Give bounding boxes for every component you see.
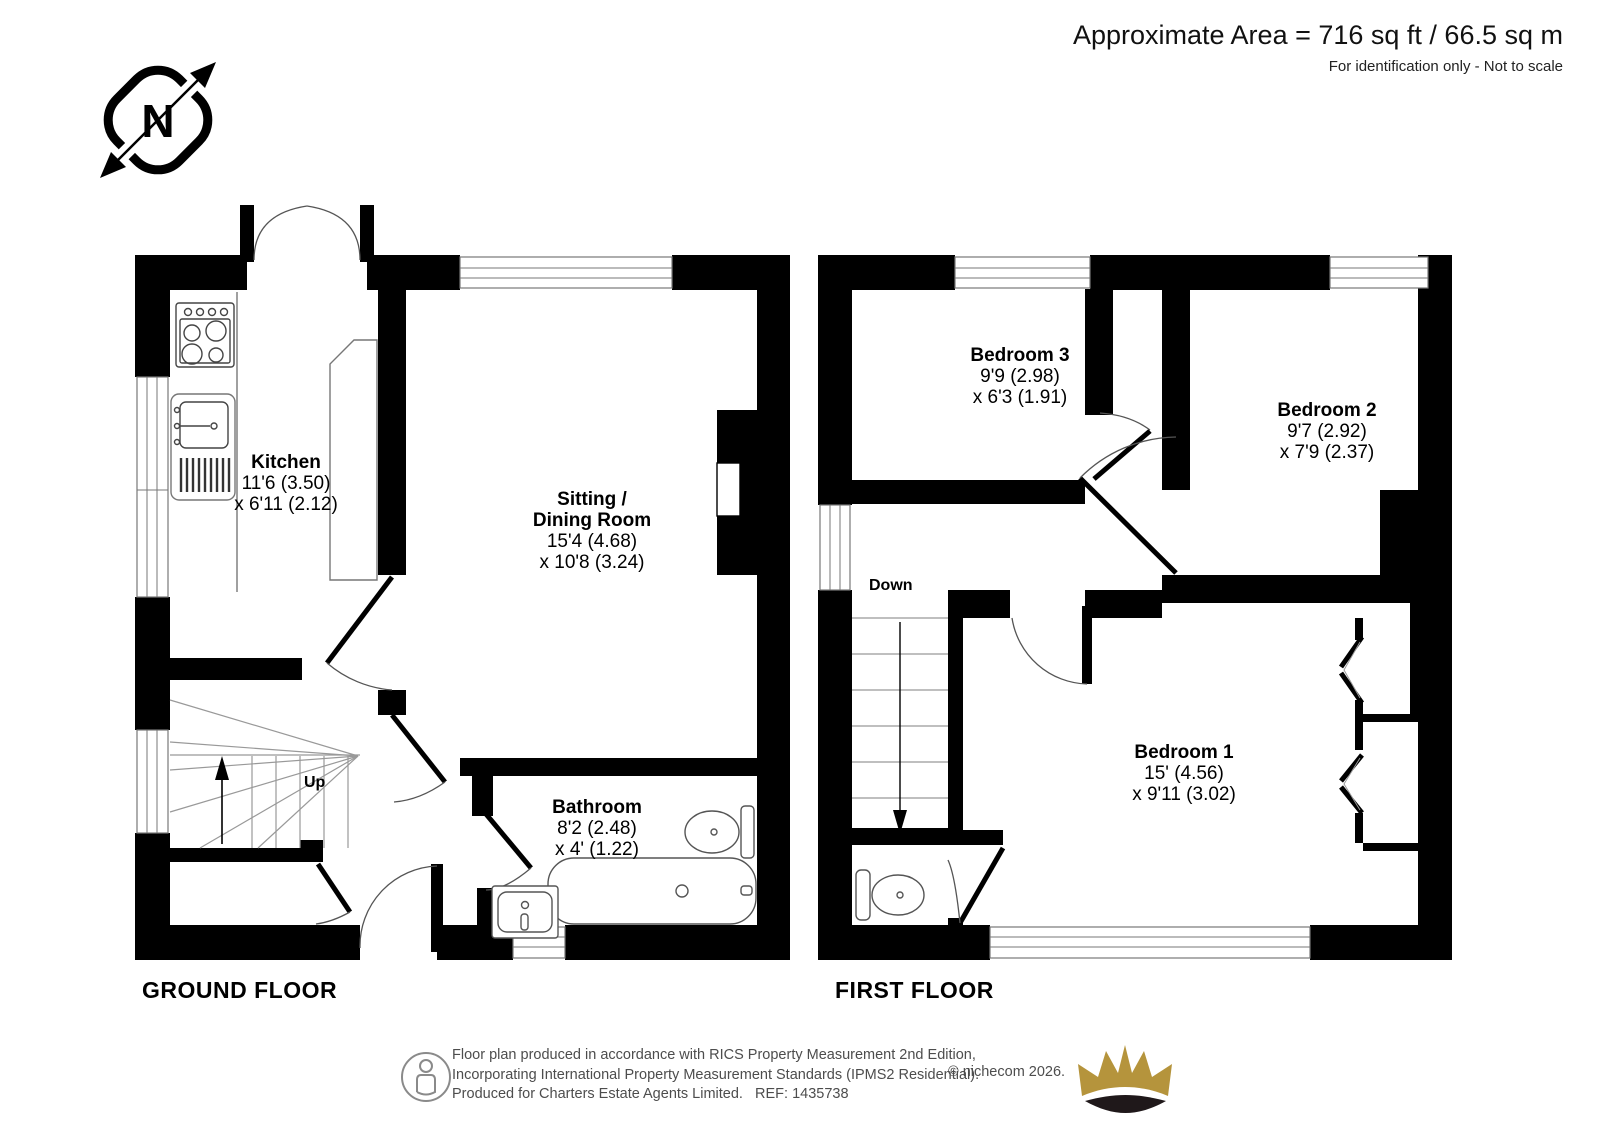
bedroom2-label: Bedroom 2 9'7 (2.92) x 7'9 (2.37)	[1277, 400, 1376, 463]
footer-disclaimer: Floor plan produced in accordance with R…	[452, 1046, 979, 1105]
copyright-text: © nichecom 2026.	[948, 1064, 1065, 1080]
ground-floor-plan	[135, 205, 790, 960]
stairs-up-label: Up	[304, 774, 325, 792]
first-floor-stairs	[852, 618, 948, 834]
north-label: N	[141, 94, 174, 148]
stairs-down-label: Down	[869, 577, 913, 595]
footer-line-3: Produced for Charters Estate Agents Limi…	[452, 1085, 979, 1105]
ground-floor-stairs	[170, 700, 360, 848]
footer-line-1: Floor plan produced in accordance with R…	[452, 1046, 979, 1066]
nichecom-crown-logo	[1078, 1045, 1172, 1113]
drainer-lines	[181, 458, 229, 492]
person-icon	[402, 1053, 450, 1101]
kitchen-label: Kitchen 11'6 (3.50) x 6'11 (2.12)	[234, 452, 338, 515]
kitchen-fixtures	[171, 292, 377, 592]
kitchen-sink-icon	[171, 394, 235, 500]
approximate-area-text: Approximate Area = 716 sq ft / 66.5 sq m	[1073, 20, 1563, 51]
first-floor-walls	[818, 255, 1452, 960]
floorplan-drawing	[0, 0, 1600, 1131]
toilet-icon	[685, 806, 754, 858]
footer-line-2: Incorporating International Property Mea…	[452, 1066, 979, 1086]
bedroom3-label: Bedroom 3 9'9 (2.98) x 6'3 (1.91)	[970, 345, 1069, 408]
bathtub-icon	[548, 858, 756, 924]
first-floor-plan	[818, 255, 1452, 960]
entrance-door	[254, 206, 360, 260]
identification-note: For identification only - Not to scale	[1329, 58, 1563, 75]
wc-toilet-icon	[856, 870, 924, 920]
bathroom-label: Bathroom 8'2 (2.48) x 4' (1.22)	[552, 797, 642, 860]
sitting-dining-label: Sitting / Dining Room 15'4 (4.68) x 10'8…	[533, 489, 651, 573]
first-floor-title: FIRST FLOOR	[835, 977, 994, 1004]
floorplan-page: Approximate Area = 716 sq ft / 66.5 sq m…	[0, 0, 1600, 1131]
sink-icon	[492, 886, 558, 938]
hob-icon	[176, 303, 234, 367]
stairs-up-arrow	[215, 756, 229, 844]
ground-floor-title: GROUND FLOOR	[142, 977, 337, 1004]
bedroom1-label: Bedroom 1 15' (4.56) x 9'11 (3.02)	[1132, 742, 1236, 805]
